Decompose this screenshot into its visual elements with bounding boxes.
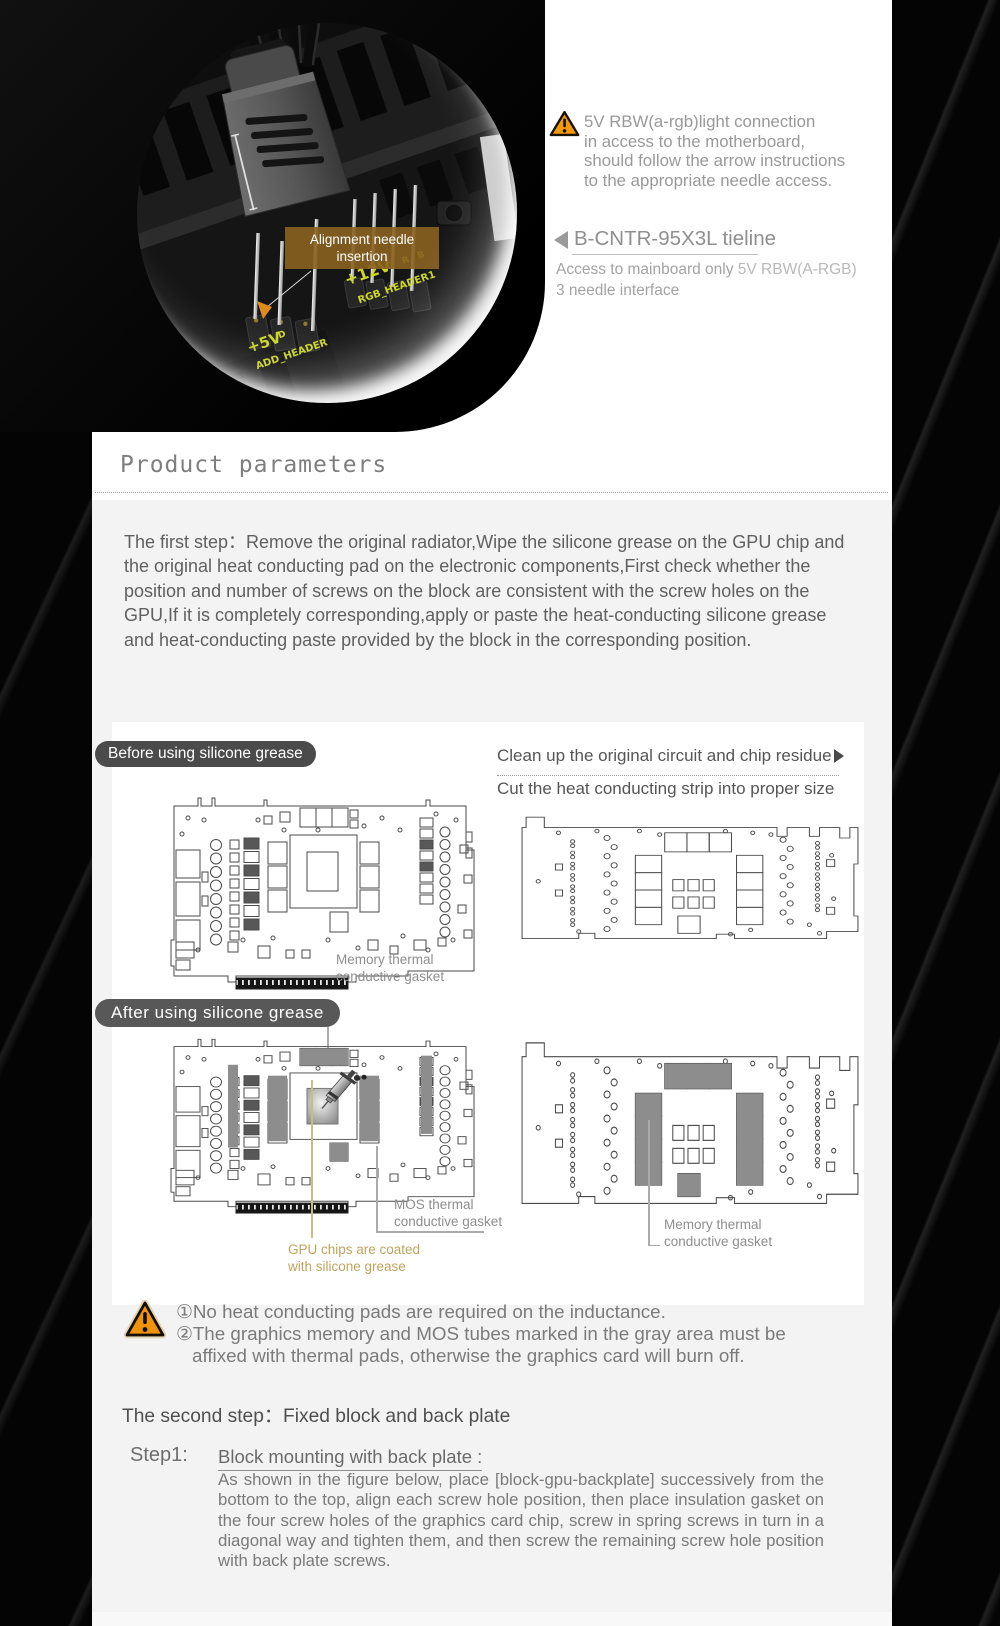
step1-subtitle: Block mounting with back plate : bbox=[218, 1446, 482, 1471]
connector-photo-render: +5V D ADD_HEADER +12V G R B RGB_HEADER1 … bbox=[137, 23, 517, 403]
section-divider bbox=[95, 492, 888, 493]
pcb-button bbox=[437, 201, 471, 225]
label-gpu-grease: GPU chips are coated with silicone greas… bbox=[288, 1241, 420, 1275]
label-memory-right: Memory thermal conductive gasket bbox=[664, 1216, 772, 1250]
tip-clean-residue: Clean up the original circuit and chip r… bbox=[497, 746, 844, 766]
label-mos-line2: conductive gasket bbox=[394, 1213, 502, 1230]
memory-right-pointer-vline bbox=[648, 1120, 650, 1246]
label-mos: MOS thermal conductive gasket bbox=[394, 1196, 502, 1230]
second-step-title: The second step：Fixed block and back pla… bbox=[122, 1400, 510, 1428]
tieline-sub-highlight: 5V RBW(A-RGB) bbox=[738, 261, 857, 278]
label-memory-top-line1: Memory thermal bbox=[336, 951, 444, 968]
warning-icon-large bbox=[124, 1300, 166, 1340]
step1-body: As shown in the figure below, place [blo… bbox=[218, 1470, 824, 1571]
first-step-paragraph: The first step：Remove the original radia… bbox=[124, 530, 852, 652]
pcb-back-after-diagram bbox=[518, 1036, 862, 1208]
label-gpu-line1: GPU chips are coated bbox=[288, 1241, 420, 1258]
section-title: Product parameters bbox=[120, 452, 387, 478]
mos-pointer-vline bbox=[376, 1146, 378, 1232]
tieline-title: B-CNTR-95X3L tieline bbox=[574, 227, 776, 251]
note-line: should follow the arrow instructions bbox=[584, 151, 845, 171]
tip-cut-strip: Cut the heat conducting strip into prope… bbox=[497, 779, 834, 799]
pcb-back-before-diagram bbox=[518, 812, 862, 942]
label-memory-top-line2: conductive gasket bbox=[336, 968, 444, 985]
callout-line2: insertion bbox=[336, 249, 387, 264]
note-line: in access to the motherboard, bbox=[584, 132, 845, 152]
connector-photo: +5V D ADD_HEADER +12V G R B RGB_HEADER1 … bbox=[137, 23, 517, 403]
product-page: +5V D ADD_HEADER +12V G R B RGB_HEADER1 … bbox=[0, 0, 1000, 1626]
tip-divider bbox=[497, 775, 839, 776]
warning-icon bbox=[549, 110, 580, 138]
caution-note-2: ②The graphics memory and MOS tubes marke… bbox=[176, 1323, 786, 1345]
label-memory-top: Memory thermal conductive gasket bbox=[336, 951, 444, 985]
label-memory-right-line1: Memory thermal bbox=[664, 1216, 772, 1233]
gpu-pointer-line bbox=[311, 1080, 313, 1238]
note-line: 5V RBW(a-rgb)light connection bbox=[584, 112, 845, 132]
bottom-strip bbox=[92, 1612, 892, 1626]
label-mos-line1: MOS thermal bbox=[394, 1196, 502, 1213]
step1-label: Step1: bbox=[130, 1444, 188, 1467]
badge-after-grease: After using silicone grease bbox=[95, 999, 340, 1027]
note-line: to the appropriate needle access. bbox=[584, 171, 845, 191]
tieline-subtitle: Access to mainboard only 5V RBW(A-RGB) bbox=[556, 259, 857, 280]
memory-right-pointer-foot bbox=[648, 1245, 660, 1247]
arrow-right-icon bbox=[834, 749, 844, 763]
tip-line1-text: Clean up the original circuit and chip r… bbox=[497, 746, 832, 765]
tieline-underline bbox=[572, 254, 758, 255]
mos-pointer-hline bbox=[376, 1231, 484, 1233]
tieline-sub-plain: Access to mainboard only bbox=[556, 261, 738, 278]
badge-before-grease: Before using silicone grease bbox=[95, 741, 316, 767]
tieline-subtitle-line2: 3 needle interface bbox=[556, 280, 679, 301]
callout-line1: Alignment needle bbox=[310, 232, 414, 247]
rgb-connection-note: 5V RBW(a-rgb)light connection in access … bbox=[584, 112, 845, 191]
label-memory-right-line2: conductive gasket bbox=[664, 1233, 772, 1250]
caution-note-1: ①No heat conducting pads are required on… bbox=[176, 1301, 666, 1323]
pcb-front-after-diagram bbox=[168, 1032, 478, 1214]
caution-note-3: affixed with thermal pads, otherwise the… bbox=[192, 1345, 745, 1367]
label-gpu-line2: with silicone grease bbox=[288, 1258, 420, 1275]
arrow-left-icon bbox=[554, 231, 568, 249]
right-black-margin bbox=[892, 0, 1000, 1626]
